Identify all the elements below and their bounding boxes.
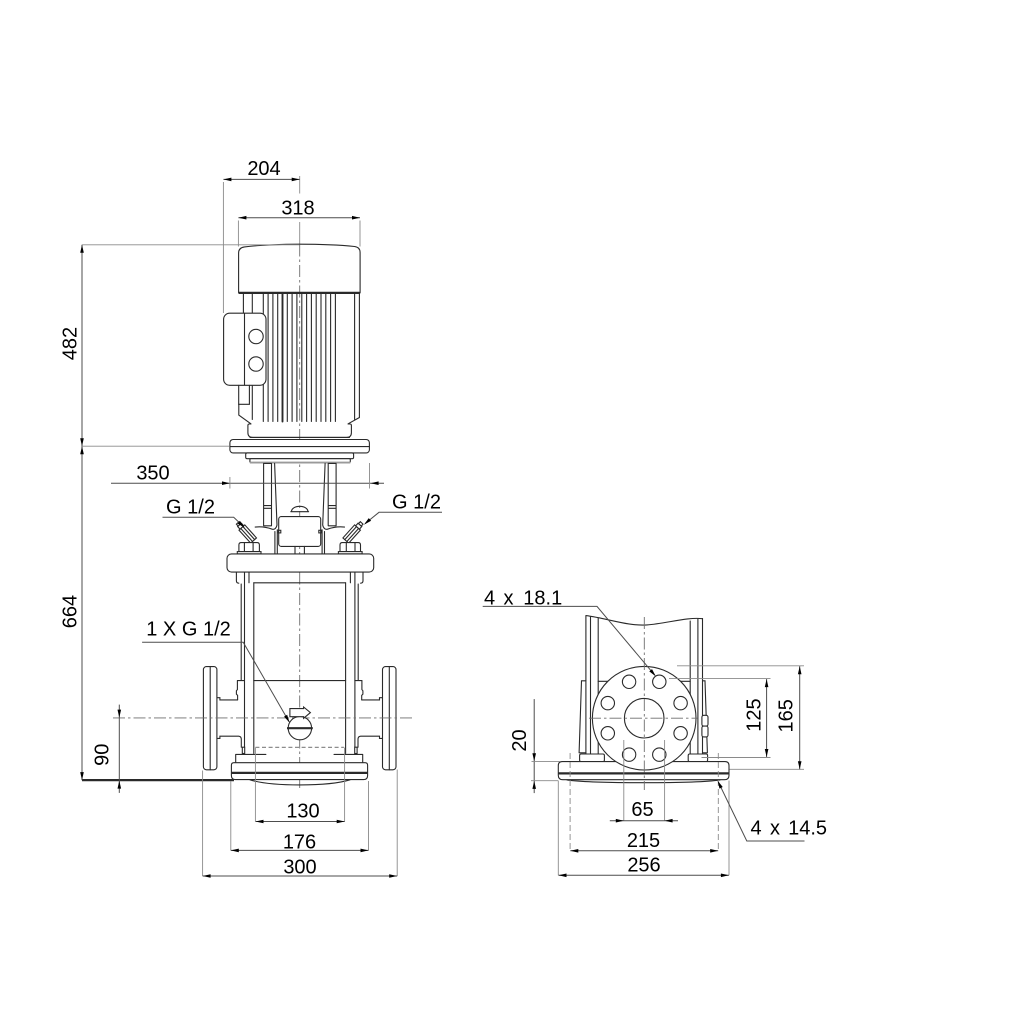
svg-text:1 X G 1/2: 1 X G 1/2 <box>146 618 231 640</box>
svg-text:350: 350 <box>136 463 169 485</box>
svg-text:130: 130 <box>286 801 319 823</box>
svg-text:482: 482 <box>60 327 82 360</box>
svg-text:125: 125 <box>744 698 766 731</box>
svg-text:664: 664 <box>60 595 82 628</box>
svg-text:65: 65 <box>631 799 653 821</box>
svg-text:G 1/2: G 1/2 <box>166 496 215 518</box>
svg-text:215: 215 <box>627 830 660 852</box>
svg-text:300: 300 <box>283 857 316 879</box>
svg-text:256: 256 <box>627 855 660 877</box>
svg-text:204: 204 <box>247 158 280 180</box>
svg-text:G 1/2: G 1/2 <box>392 491 441 513</box>
svg-text:165: 165 <box>776 699 798 732</box>
svg-text:20: 20 <box>509 729 531 751</box>
svg-text:176: 176 <box>283 831 316 853</box>
svg-text:90: 90 <box>92 744 114 766</box>
svg-text:318: 318 <box>281 198 314 220</box>
